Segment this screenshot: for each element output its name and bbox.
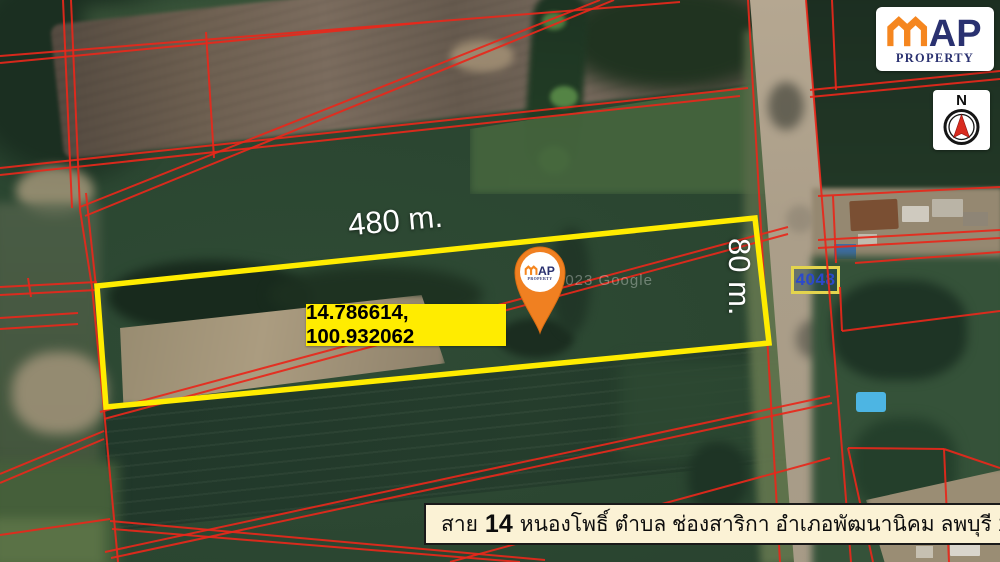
caption-address: หนองโพธิ์ ตำบล ช่องสาริกา อำเภอพัฒนานิคม…: [520, 508, 1000, 541]
compass-north-label: N: [956, 92, 967, 109]
brand-logo: [876, 7, 994, 71]
location-pin-icon[interactable]: [509, 242, 571, 335]
property-map-image: 4048 2023 Google 480 m. 80 m. 14.786614,…: [0, 0, 1000, 562]
coordinates-label: 14.786614, 100.932062: [306, 304, 506, 346]
caption-road-prefix: สาย: [441, 508, 478, 541]
compass-rose: N: [933, 90, 990, 150]
caption-road-number: 14: [485, 510, 513, 539]
brand-logo-card: [876, 7, 994, 71]
depth-measurement-label: 80 m.: [721, 238, 757, 316]
coordinates-value: 14.786614, 100.932062: [306, 301, 506, 349]
property-boundary-layer: [0, 0, 1000, 562]
address-caption-bar: สาย 14 หนองโพธิ์ ตำบล ช่องสาริกา อำเภอพั…: [424, 503, 1000, 545]
